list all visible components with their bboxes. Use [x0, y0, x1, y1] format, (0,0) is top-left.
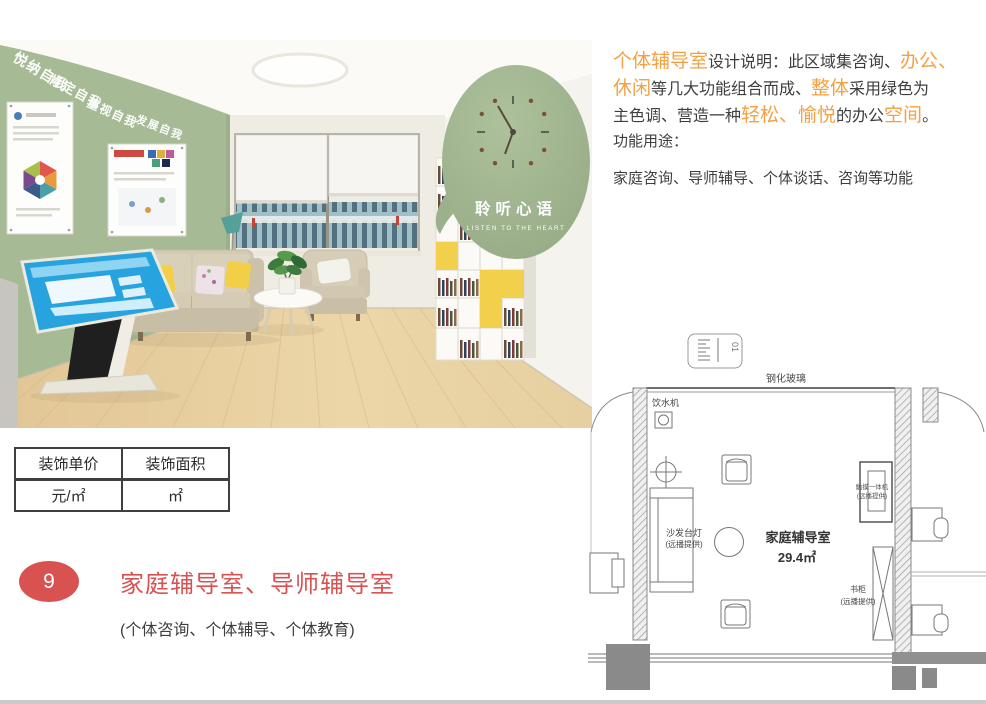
right-door-post [923, 388, 938, 422]
water-dispenser-symbol [655, 412, 672, 428]
left-door-arc [591, 392, 633, 432]
lamp-symbol [650, 456, 682, 488]
touch-machine-label: 触摸一体机 [856, 482, 889, 491]
yellow-pillow-2 [225, 261, 252, 290]
bookcase-label: 书柜 [850, 584, 866, 594]
window [233, 134, 421, 256]
page: 悦纳自我 肯定自我 重视自我 发展自我 [0, 0, 986, 704]
bottom-rule [0, 700, 986, 704]
touch-machine-symbol [860, 462, 892, 522]
floor-plan-drawing: 01 钢化玻璃 饮水机 沙发台灯 (远播提供) [588, 328, 986, 704]
white-pillow [317, 258, 352, 284]
section-subtitle: (个体咨询、个体辅导、个体教育) [120, 616, 355, 640]
plan-round-table [715, 528, 744, 557]
roller-shade-left [236, 135, 327, 203]
right-wall [895, 388, 911, 660]
glass-wall-label: 钢化玻璃 [766, 372, 806, 385]
poster-right [108, 144, 186, 236]
pricing-table: 装饰单价 装饰面积 元/㎡ ㎡ [14, 447, 230, 512]
design-description: 个体辅导室设计说明：此区域集咨询、办公、 休闲等几大功能组合而成、整体采用绿色为… [613, 49, 983, 130]
pricing-header-area: 装饰面积 [122, 448, 229, 480]
plan-bookcase-symbol [873, 547, 893, 640]
room-name-label: 家庭辅导室 [765, 530, 830, 545]
pricing-value-area: ㎡ [122, 480, 229, 512]
sofa-lamp-label: 沙发台灯 [666, 527, 702, 538]
plan-left-desk [590, 553, 624, 593]
gray-wall-edge [0, 278, 18, 428]
plan-chair-bottom [721, 600, 750, 628]
sofa-lamp-label-2: (远播提供) [665, 539, 703, 549]
water-dispenser-label: 饮水机 [652, 397, 679, 408]
plan-right-desks [912, 508, 986, 635]
legend-mark: 01 [730, 342, 740, 352]
left-wall [633, 388, 647, 640]
right-door-arc [938, 392, 984, 432]
plan-bottom-band [588, 644, 986, 690]
floral-pillow [195, 265, 225, 295]
bubble-subtitle: LISTEN TO THE HEART [467, 225, 566, 232]
room-render: 悦纳自我 肯定自我 重视自我 发展自我 [0, 40, 592, 428]
usage-label: 功能用途： [613, 130, 688, 151]
usage-functions: 家庭咨询、导师辅导、个体谈话、咨询等功能 [613, 167, 913, 188]
pricing-value-unit-price: 元/㎡ [15, 480, 122, 512]
desc-highlight: 个体辅导室 [613, 51, 708, 72]
bubble-title: 聆听心语 [475, 199, 557, 218]
touch-machine-label-2: (远播提供) [857, 491, 887, 500]
section-number-badge: 9 [19, 561, 79, 602]
poster-left [7, 102, 73, 234]
section-number: 9 [43, 570, 55, 594]
room-area-label: 29.4㎡ [778, 550, 816, 565]
round-ceiling-light [253, 54, 347, 86]
roller-shade-right [329, 135, 418, 196]
floor-plan: 01 钢化玻璃 饮水机 沙发台灯 (远播提供) [588, 328, 986, 704]
section-title: 家庭辅导室、导师辅导室 [120, 564, 395, 599]
armchair [300, 250, 370, 321]
plan-legend-symbol: 01 [688, 334, 742, 368]
plan-chair-top [722, 455, 751, 484]
pricing-header-unit-price: 装饰单价 [15, 448, 122, 480]
room-render-image: 悦纳自我 肯定自我 重视自我 发展自我 [0, 40, 592, 428]
bookcase-label-2: (远播提供) [841, 596, 876, 606]
